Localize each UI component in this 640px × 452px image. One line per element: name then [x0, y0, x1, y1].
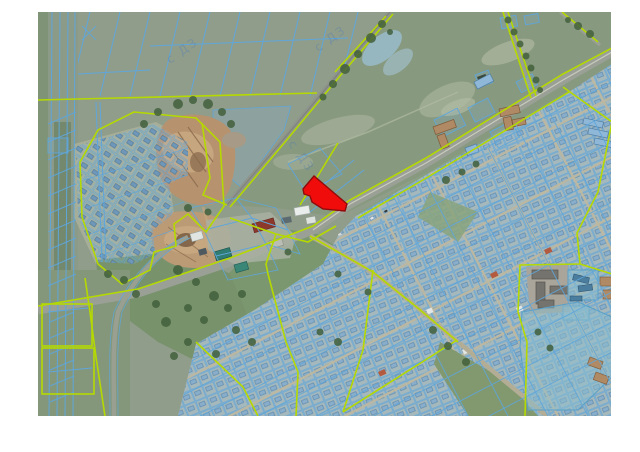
aerial-map[interactable]: с ДЗ с ДЗ с ДЗ [38, 12, 611, 416]
screenshot-page: с ДЗ с ДЗ с ДЗ [0, 0, 640, 452]
